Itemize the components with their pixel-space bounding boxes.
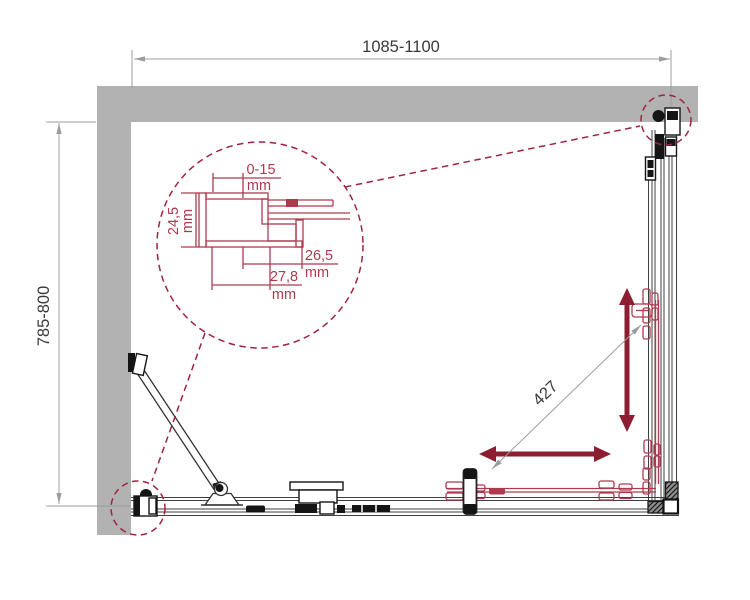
shower-enclosure-drawing: 1085-1100 785-800 (0, 0, 750, 600)
bottom-rail-hardware (246, 469, 477, 514)
profile-height-unit: mm (180, 209, 196, 233)
top-wall (97, 86, 698, 122)
inner-width-value: 26,5 (305, 248, 333, 264)
leader-to-top-right (345, 126, 640, 187)
wall-profile-section: 0-15 mm 24,5 mm 26,5 mm 27,8 mm (166, 162, 350, 303)
adjust-range-unit: mm (247, 178, 271, 194)
bottom-left-wall-bracket (134, 489, 157, 516)
technical-drawing-page: 1085-1100 785-800 (0, 0, 750, 600)
diagonal-dimension: 427 (492, 325, 641, 469)
width-dimension-label: 1085-1100 (362, 38, 440, 56)
slide-arrow-horizontal (479, 446, 611, 462)
outer-width-unit: mm (272, 287, 296, 303)
depth-dimension-label: 785-800 (35, 286, 53, 347)
adjust-range-value: 0-15 (246, 162, 275, 178)
left-wall (97, 86, 131, 535)
diagonal-dimension-label: 427 (529, 377, 561, 409)
right-panel-rails (649, 130, 677, 512)
room-walls (97, 86, 698, 535)
sliding-door-bottom (446, 468, 656, 500)
door-stopper (246, 506, 265, 513)
bottom-door-handle (464, 469, 477, 514)
profile-height-dimension: 24,5 mm (166, 193, 199, 247)
detail-callouts (111, 95, 691, 535)
door-panel (132, 361, 223, 494)
door-pivot-foot (201, 481, 243, 505)
inner-width-unit: mm (305, 265, 329, 281)
sliding-door-right (632, 289, 660, 484)
outer-width-value: 27,8 (270, 269, 298, 285)
outer-width-dimension: 27,8 mm (212, 247, 302, 303)
